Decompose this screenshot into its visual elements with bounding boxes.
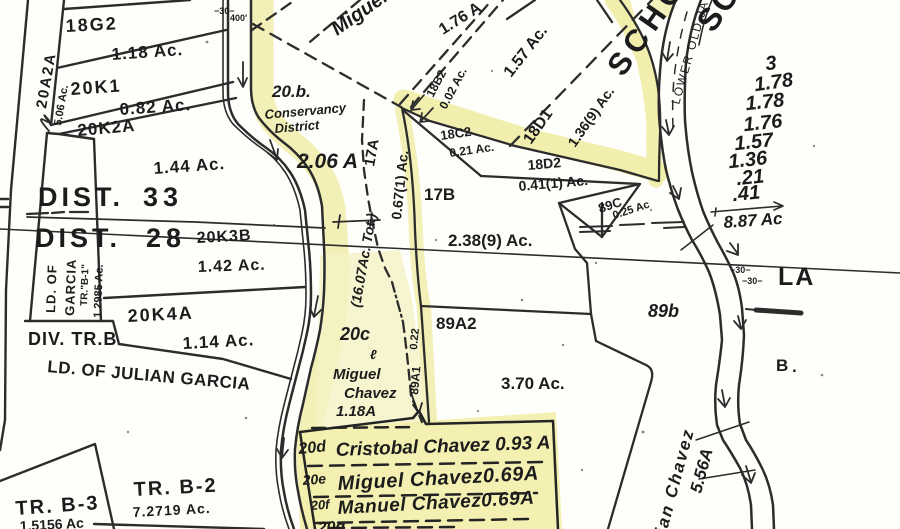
svg-text:1.18A: 1.18A xyxy=(336,403,376,420)
svg-text:33: 33 xyxy=(143,182,183,212)
svg-text:ℓ: ℓ xyxy=(370,347,377,362)
svg-text:B: B xyxy=(776,356,788,375)
svg-text:89b: 89b xyxy=(648,301,679,321)
svg-text:89A2: 89A2 xyxy=(436,314,477,333)
svg-text:.41: .41 xyxy=(731,181,761,206)
svg-text:−30−: −30− xyxy=(730,265,751,275)
svg-text:0.22: 0.22 xyxy=(408,328,422,350)
svg-text:18D2: 18D2 xyxy=(527,154,562,173)
svg-text:DIST.: DIST. xyxy=(38,182,124,212)
svg-text:2.06 A: 2.06 A xyxy=(296,150,358,173)
svg-text:89A1: 89A1 xyxy=(407,365,423,395)
svg-text:28: 28 xyxy=(146,223,186,253)
svg-text:TR."B-1": TR."B-1" xyxy=(79,264,91,306)
svg-text:TR. B-2: TR. B-2 xyxy=(133,475,218,501)
svg-text:20K4A: 20K4A xyxy=(127,303,194,326)
svg-text:20c: 20c xyxy=(339,324,370,344)
svg-text:3.70 Ac.: 3.70 Ac. xyxy=(501,374,565,393)
svg-text:2.38(9) Ac.: 2.38(9) Ac. xyxy=(448,231,532,250)
svg-text:400': 400' xyxy=(230,13,247,23)
svg-text:−30−: −30− xyxy=(742,276,763,286)
svg-text:Chavez: Chavez xyxy=(344,385,397,402)
svg-text:1.2985 Ac.: 1.2985 Ac. xyxy=(92,264,106,318)
svg-text:.: . xyxy=(792,357,797,376)
svg-text:20.b.: 20.b. xyxy=(271,82,311,101)
svg-text:GARCIA: GARCIA xyxy=(62,258,79,316)
svg-text:DIST.: DIST. xyxy=(35,223,121,253)
svg-text:DIV. TR.B: DIV. TR.B xyxy=(28,329,117,349)
svg-text:20g: 20g xyxy=(316,519,346,529)
svg-text:20f: 20f xyxy=(309,497,331,513)
svg-text:1.14 Ac.: 1.14 Ac. xyxy=(182,330,255,353)
svg-text:LD. OF: LD. OF xyxy=(43,264,60,313)
svg-text:20d: 20d xyxy=(297,438,328,458)
svg-text:LA: LA xyxy=(778,263,815,291)
svg-text:Miguel: Miguel xyxy=(333,366,381,383)
svg-text:20K3B: 20K3B xyxy=(196,227,252,247)
svg-text:1.5156 Ac: 1.5156 Ac xyxy=(19,515,84,529)
svg-text:17B: 17B xyxy=(424,185,455,204)
svg-text:20e: 20e xyxy=(301,470,327,488)
svg-text:1.42 Ac.: 1.42 Ac. xyxy=(198,257,266,276)
svg-text:18G2: 18G2 xyxy=(65,13,118,36)
svg-text:20K1: 20K1 xyxy=(70,75,122,99)
